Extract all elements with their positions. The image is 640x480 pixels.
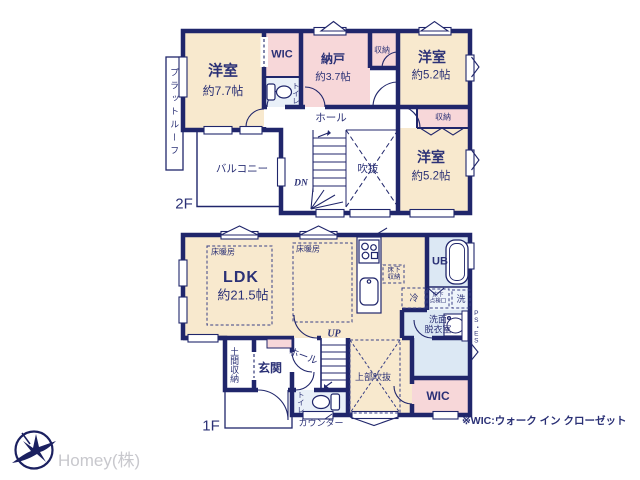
toilet-icon-1f [313, 394, 340, 410]
room-label-bedroom77-size: 約7.7帖 [203, 85, 244, 99]
stairs-arrow-icon [327, 130, 331, 136]
company-logo [12, 432, 56, 469]
floor1-label: 1F [202, 417, 220, 434]
room-label-wic-2f: WIC [271, 49, 292, 62]
room-label-bedroom52a-size: 約5.2帖 [412, 69, 451, 82]
underfloor-hatch-label: 床下 点検口 [430, 293, 447, 306]
room-label-bedroom52b-name: 洋室 [417, 149, 445, 165]
shoe-cabinet [267, 339, 292, 348]
roof-window-icon [421, 22, 448, 32]
pipe-space-box [462, 311, 468, 341]
room-label-hall-2f: ホール [315, 112, 347, 124]
floor1-stairs [321, 345, 348, 389]
roof-window-icon [321, 22, 346, 32]
stairs-dn-label: DN [294, 179, 308, 190]
room-label-ldk-size: 約21.5帖 [217, 289, 268, 304]
room-label-bedroom52a-name: 洋室 [418, 49, 446, 65]
room-label-void: 吹抜 [358, 163, 379, 175]
washroom-line2: 脱衣室 [424, 325, 451, 335]
room-label-ldk-name: LDK [223, 269, 259, 287]
wic-note: ※WIC:ウォーク イン クローゼット [462, 415, 627, 427]
kitchen-icons [357, 237, 381, 313]
side-window-icon [472, 344, 479, 360]
underfloor-storage-line2: 収納 [388, 274, 401, 281]
stove-icon [359, 240, 379, 263]
room-label-storage-room-name: 納戸 [321, 53, 345, 67]
room-label-closet-top: 収納 [374, 45, 390, 54]
room-label-washroom: 洗面 脱衣室 [424, 315, 451, 336]
room-label-balcony: バルコニー [216, 163, 268, 175]
room-label-bedroom77-name: 洋室 [208, 62, 238, 79]
room-label-unit-bath: UB [432, 256, 448, 269]
washroom-line1: 洗面 [424, 315, 451, 325]
floorplan-page: 2F プラットルーフ 洋室 約7.7帖 WIC トイレ 納戸 約3.7帖 収納 … [0, 0, 640, 480]
roof-window-icon [221, 226, 258, 235]
room-label-toilet-1f: トイレ [296, 391, 305, 414]
room-label-entrance: 玄関 [258, 362, 282, 376]
underfloor-storage-label: 床下 収納 [388, 267, 401, 282]
refrigerator-label: 冷 [409, 293, 418, 303]
room-label-doma-storage: 土間収納 [229, 347, 239, 383]
roof-window-icon [300, 226, 337, 235]
porch-area [225, 390, 292, 428]
room-label-bedroom52b-size: 約5.2帖 [412, 170, 451, 183]
floor-heating-right-label: 床暖房 [296, 244, 320, 253]
pipe-space-label: PS・ES [472, 310, 479, 345]
room-label-upper-void: 上部吹抜 [355, 372, 391, 382]
counter-label: カウンター [298, 418, 343, 428]
door-arc [296, 372, 314, 390]
room-label-toilet-2f: トイレ [291, 82, 300, 105]
room-label-closet-side: 収納 [435, 112, 451, 121]
floor-heating-left-label: 床暖房 [211, 247, 235, 256]
company-name: Homey(株) [58, 451, 140, 471]
stairs-up-label: UP [327, 328, 340, 340]
underfloor-hatch-line2: 点検口 [430, 299, 447, 305]
floor2-label: 2F [175, 195, 193, 212]
washer-label: 洗 [456, 294, 465, 304]
room-label-wic-1f: WIC [426, 390, 449, 404]
floor2-stairs [311, 130, 346, 209]
room-label-storage-room-size: 約3.7帖 [315, 71, 351, 83]
door-arc [373, 82, 398, 107]
flat-roof-label: プラットルーフ [169, 68, 179, 159]
